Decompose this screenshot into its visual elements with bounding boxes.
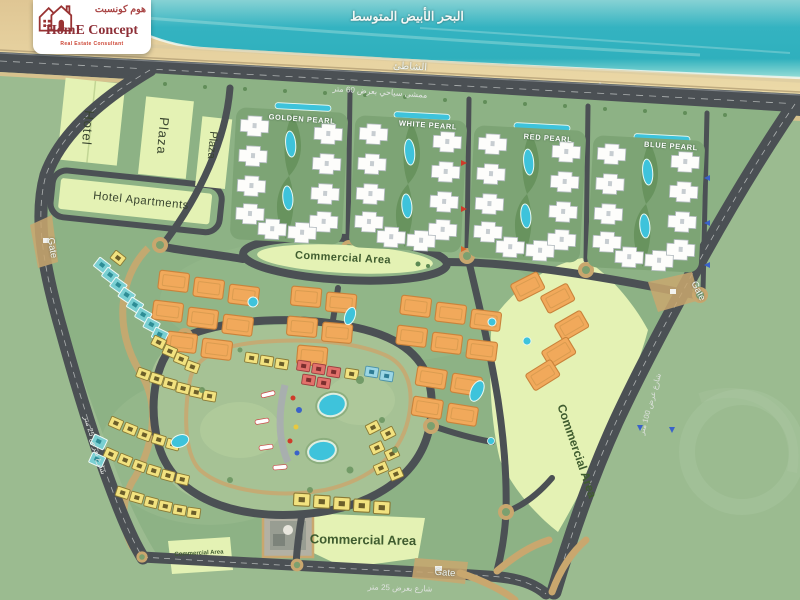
mosque	[263, 513, 313, 557]
golden-pearl-cluster	[230, 107, 349, 245]
logo-arabic-name: هوم كونسبت	[95, 4, 146, 15]
blue-pearl-cluster	[587, 135, 706, 273]
logo-english-name: HomE Concept	[33, 23, 151, 39]
brand-logo: هوم كونسبت HomE Concept Real Estate Cons…	[33, 0, 151, 54]
red-pearl-cluster	[468, 125, 587, 263]
logo-tagline: Real Estate Consultant	[33, 41, 151, 47]
master-plan-svg	[0, 0, 800, 600]
white-pearl-cluster	[349, 115, 468, 253]
master-plan-screenshot: هوم كونسبت HomE Concept Real Estate Cons…	[0, 0, 800, 600]
